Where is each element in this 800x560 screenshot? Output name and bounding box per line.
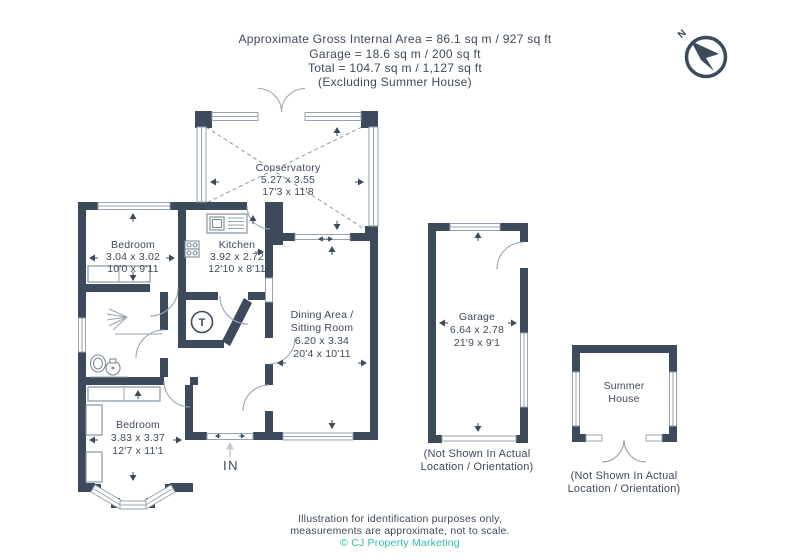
entrance-marker: IN: [223, 442, 239, 473]
garage-side-door: [497, 242, 524, 269]
room-imperial: 20'4 x 10'11: [293, 348, 351, 360]
summer-house-door-left: [602, 440, 624, 462]
window: [305, 113, 361, 121]
room-label-bedroom1: Bedroom 3.04 x 3.02 10'0 x 9'11: [106, 239, 160, 275]
room-metric: 3.83 x 3.37: [111, 432, 165, 444]
garage-door-opening: [442, 436, 516, 441]
room-name-1: Summer: [604, 380, 645, 392]
room-label-garage: Garage 6.64 x 2.78 21'9 x 9'1 (Not Shown…: [421, 311, 534, 473]
summer-house-note-1: (Not Shown In Actual: [571, 470, 678, 482]
window: [521, 333, 528, 407]
dining-lower-door: [243, 385, 269, 411]
footer-line-1: Illustration for identification purposes…: [298, 513, 502, 525]
room-label-conservatory: Conservatory 5.27 x 3.55 17'3 x 11'8: [256, 162, 321, 198]
room-imperial: 21'9 x 9'1: [454, 337, 500, 349]
header-line-3: Total = 104.7 sq m / 1,127 sq ft: [308, 61, 482, 75]
summer-house-door-right: [624, 440, 646, 462]
room-name-2: Sitting Room: [291, 322, 354, 334]
window: [586, 435, 602, 441]
window: [573, 372, 580, 426]
header-line-2: Garage = 18.6 sq m / 200 sq ft: [309, 47, 481, 61]
window: [450, 224, 500, 231]
toilet-icon: [91, 355, 106, 372]
window: [197, 127, 206, 202]
room-label-kitchen: Kitchen 3.92 x 2.72 12'10 x 8'11: [208, 239, 266, 275]
window: [79, 318, 86, 352]
footer-disclaimer: Illustration for identification purposes…: [290, 513, 509, 549]
room-imperial: 12'7 x 11'1: [112, 445, 164, 457]
window: [266, 278, 273, 302]
front-door: [207, 434, 253, 440]
room-metric: 3.92 x 2.72: [210, 251, 264, 263]
room-metric: 3.04 x 3.02: [106, 251, 160, 263]
compass-north-label: N: [676, 28, 689, 41]
conservatory-door-right: [282, 89, 306, 113]
room-name: Bedroom: [111, 239, 155, 251]
garage-note-1: (Not Shown In Actual: [424, 448, 531, 460]
room-name-2: House: [608, 393, 639, 405]
header-line-1: Approximate Gross Internal Area = 86.1 s…: [239, 32, 552, 46]
room-imperial: 10'0 x 9'11: [107, 263, 159, 275]
kitchen-sink-icon: [207, 214, 247, 233]
floorplan-canvas: Approximate Gross Internal Area = 86.1 s…: [0, 0, 800, 560]
shower-icon: [107, 309, 162, 334]
garage-block: Garage 6.64 x 2.78 21'9 x 9'1 (Not Shown…: [421, 223, 534, 473]
footer-copyright: © CJ Property Marketing: [340, 537, 460, 549]
tank-label: T: [199, 317, 206, 329]
window: [98, 203, 170, 210]
room-label-dining: Dining Area / Sitting Room 6.20 x 3.34 2…: [291, 309, 354, 360]
window: [212, 113, 258, 121]
window: [369, 127, 378, 226]
floorplan-page: Approximate Gross Internal Area = 86.1 s…: [0, 0, 800, 560]
room-metric: 6.64 x 2.78: [450, 324, 504, 336]
room-name: Conservatory: [256, 162, 321, 174]
room-name: Garage: [459, 311, 495, 323]
header-line-4: (Excluding Summer House): [318, 75, 472, 89]
bay-window: [91, 485, 175, 509]
entrance-label: IN: [223, 458, 239, 473]
room-name: Bedroom: [116, 419, 160, 431]
tank-icon: T: [192, 312, 213, 333]
stove-hob-icon: [185, 241, 199, 257]
compass-icon: N: [676, 28, 726, 77]
window: [646, 435, 662, 441]
conservatory-door-left: [258, 89, 282, 113]
footer-line-2: measurements are approximate, not to sca…: [290, 525, 509, 537]
room-name: Kitchen: [219, 239, 255, 251]
summer-house-block: Summer House (Not Shown In Actual Locati…: [568, 345, 681, 495]
room-imperial: 17'3 x 11'8: [262, 186, 314, 198]
room-imperial: 12'10 x 8'11: [208, 263, 266, 275]
entrance-arrow-icon: [226, 442, 234, 450]
garage-note-2: Location / Orientation): [421, 461, 534, 473]
room-label-bedroom2: Bedroom 3.83 x 3.37 12'7 x 11'1: [111, 419, 165, 457]
summer-house-note-2: Location / Orientation): [568, 483, 681, 495]
header-area-summary: Approximate Gross Internal Area = 86.1 s…: [239, 32, 552, 89]
window: [283, 433, 353, 440]
room-metric: 5.27 x 3.55: [261, 174, 315, 186]
window: [670, 372, 677, 426]
room-name-1: Dining Area /: [291, 309, 354, 321]
room-metric: 6.20 x 3.34: [295, 335, 349, 347]
